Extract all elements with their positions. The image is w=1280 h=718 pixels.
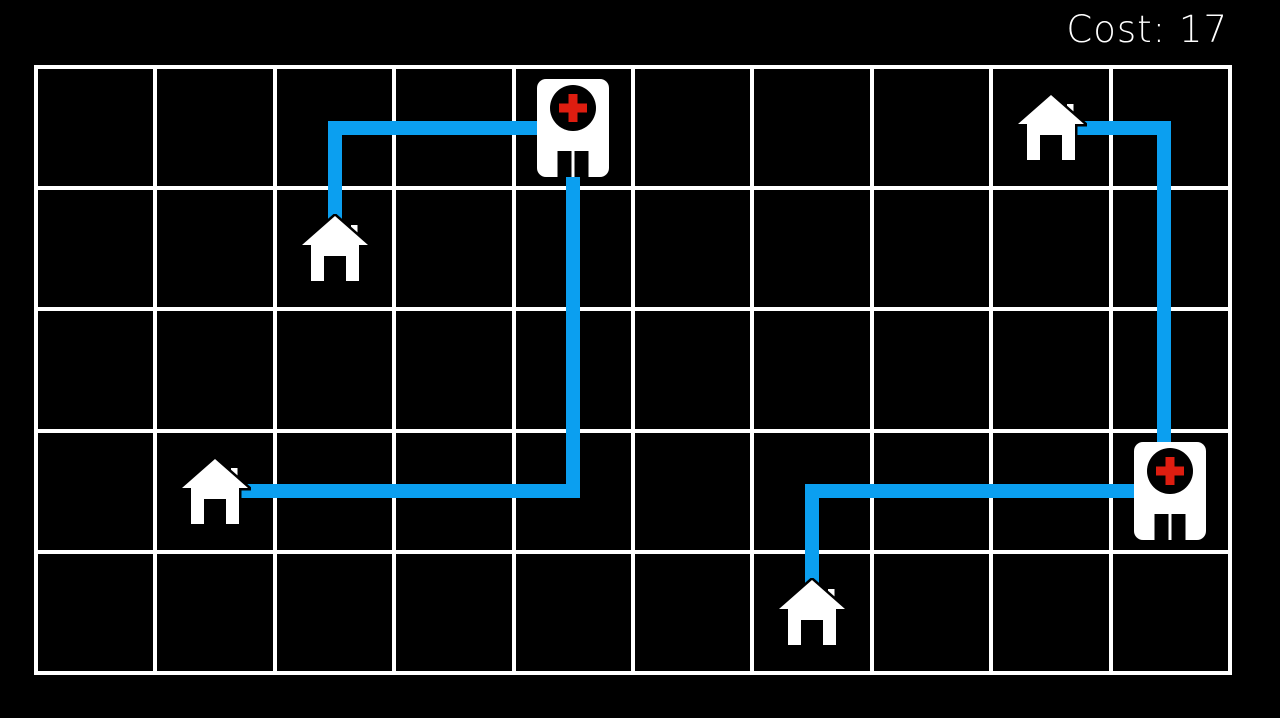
hospital-door-right bbox=[575, 151, 589, 177]
hospital-door-left bbox=[558, 151, 572, 177]
hospital-icon[interactable] bbox=[1134, 442, 1206, 540]
game-stage: Cost: 17 bbox=[0, 0, 1280, 718]
buildings-layer bbox=[0, 0, 1280, 718]
hospital-icon[interactable] bbox=[537, 79, 609, 177]
house-icon[interactable] bbox=[299, 214, 371, 283]
house-icon[interactable] bbox=[179, 457, 251, 526]
house-icon[interactable] bbox=[776, 578, 848, 647]
hospital-door-left bbox=[1155, 514, 1169, 540]
hospital-door-right bbox=[1172, 514, 1186, 540]
house-icon[interactable] bbox=[1015, 93, 1087, 162]
cost-label: Cost: 17 bbox=[1066, 8, 1228, 51]
